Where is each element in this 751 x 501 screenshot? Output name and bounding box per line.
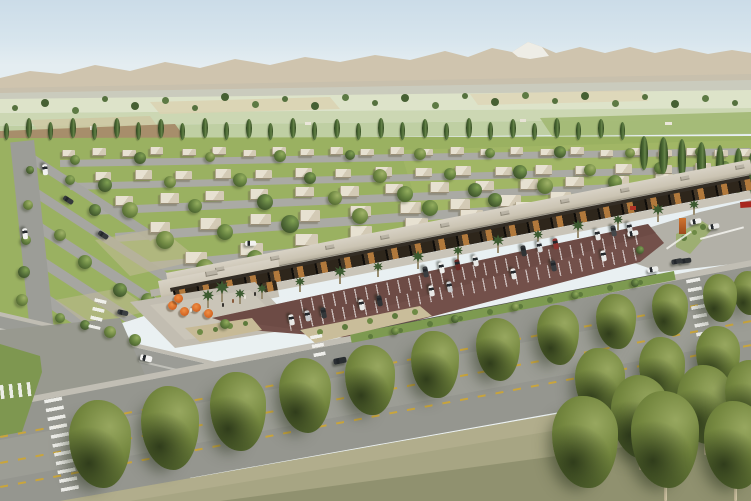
aerial-development-render <box>0 0 751 501</box>
